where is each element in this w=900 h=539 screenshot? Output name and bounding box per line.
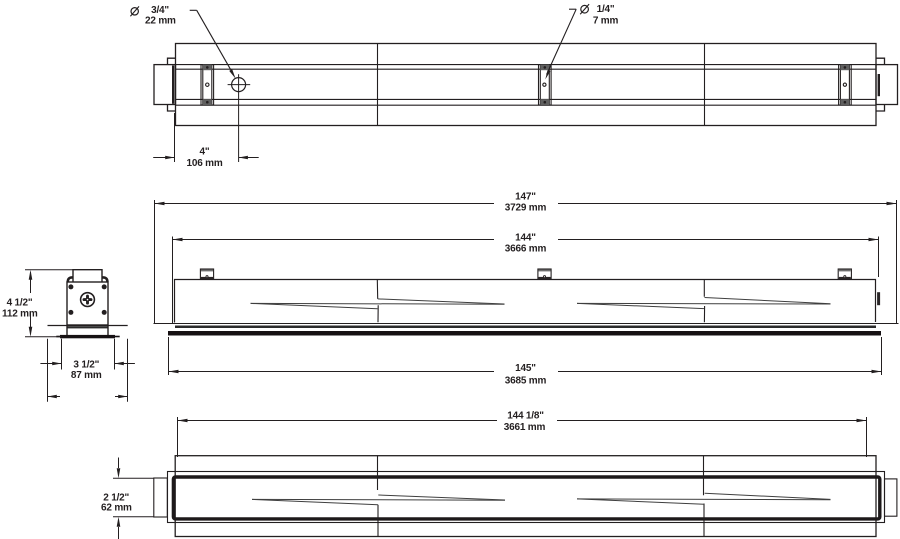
svg-text:3666 mm: 3666 mm xyxy=(505,244,547,255)
svg-text:145": 145" xyxy=(515,363,536,374)
svg-text:62 mm: 62 mm xyxy=(101,503,132,514)
svg-text:4 1/2": 4 1/2" xyxy=(7,298,33,309)
svg-text:4": 4" xyxy=(200,146,210,157)
svg-text:144": 144" xyxy=(515,232,536,243)
svg-text:3685 mm: 3685 mm xyxy=(505,376,547,387)
svg-text:87 mm: 87 mm xyxy=(71,370,102,381)
svg-text:22 mm: 22 mm xyxy=(145,15,176,26)
svg-text:144 1/8": 144 1/8" xyxy=(507,411,544,422)
svg-text:3661 mm: 3661 mm xyxy=(504,422,546,433)
svg-text:147": 147" xyxy=(515,191,536,202)
svg-text:3 1/2": 3 1/2" xyxy=(73,359,99,370)
svg-text:3729 mm: 3729 mm xyxy=(505,202,547,213)
svg-text:112 mm: 112 mm xyxy=(2,308,38,319)
svg-text:7 mm: 7 mm xyxy=(593,16,619,27)
svg-text:1/4": 1/4" xyxy=(597,4,615,15)
svg-text:106 mm: 106 mm xyxy=(186,158,222,169)
svg-text:3/4": 3/4" xyxy=(151,5,169,16)
